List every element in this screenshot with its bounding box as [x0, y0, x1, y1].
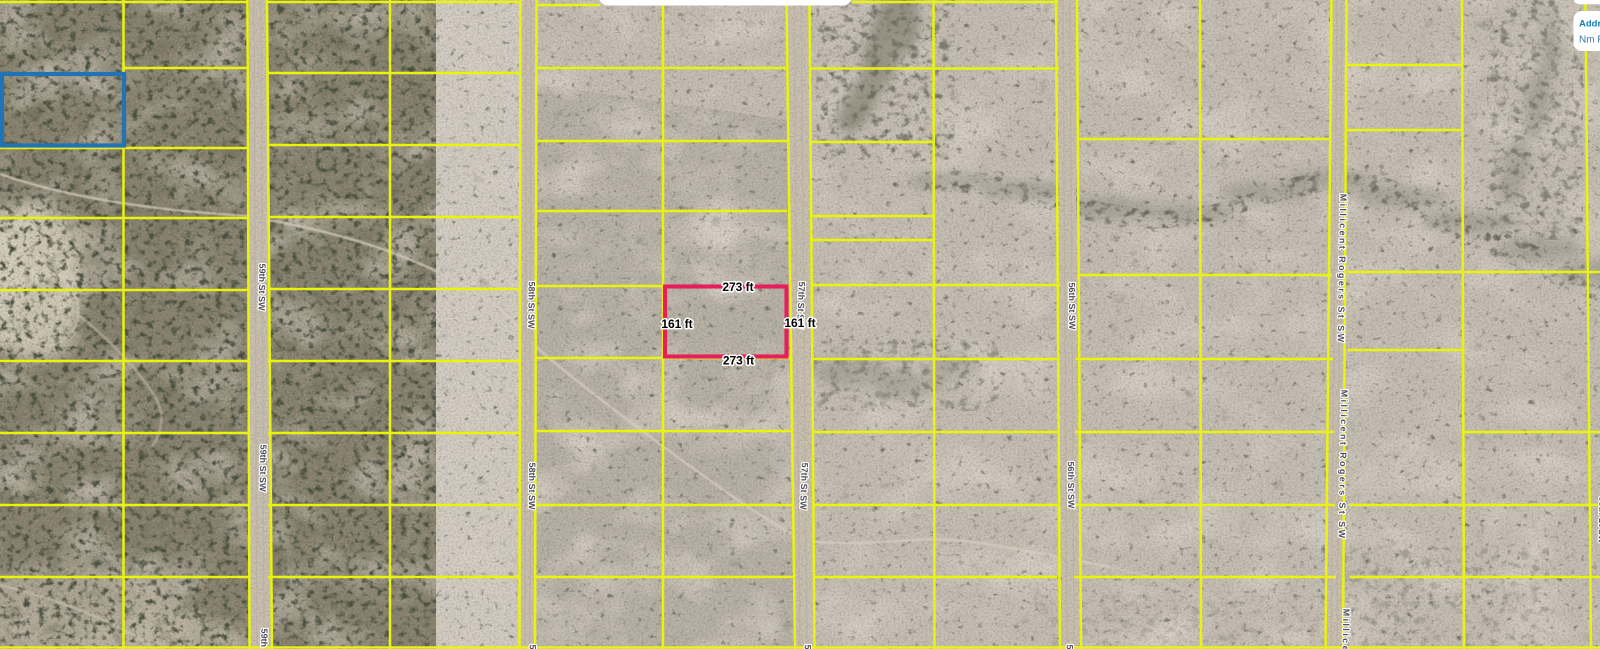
svg-text:273 ft: 273 ft	[722, 280, 753, 294]
svg-text:56th St SW: 56th St SW	[1066, 461, 1076, 509]
svg-text:Address: Address	[1579, 19, 1600, 30]
svg-text:56th St SW: 56th St SW	[1067, 282, 1077, 330]
svg-text:59th St SW: 59th St SW	[259, 628, 270, 649]
svg-text:273 ft: 273 ft	[723, 354, 754, 368]
svg-text:56th St SW: 56th St SW	[1065, 644, 1075, 649]
svg-text:57th St SW: 57th St SW	[798, 462, 810, 510]
svg-text:59th St SW: 59th St SW	[258, 444, 269, 492]
svg-text:58th St SW: 58th St SW	[527, 462, 537, 510]
svg-text:57th St SW: 57th St SW	[801, 644, 813, 649]
svg-text:59th St SW: 59th St SW	[257, 263, 268, 311]
svg-text:58th St SW: 58th St SW	[526, 281, 536, 329]
svg-text:Nm Rio C: Nm Rio C	[1579, 35, 1600, 46]
svg-text:58th St SW: 58th St SW	[527, 644, 537, 649]
svg-text:161 ft: 161 ft	[784, 316, 815, 330]
svg-text:161 ft: 161 ft	[661, 317, 692, 331]
